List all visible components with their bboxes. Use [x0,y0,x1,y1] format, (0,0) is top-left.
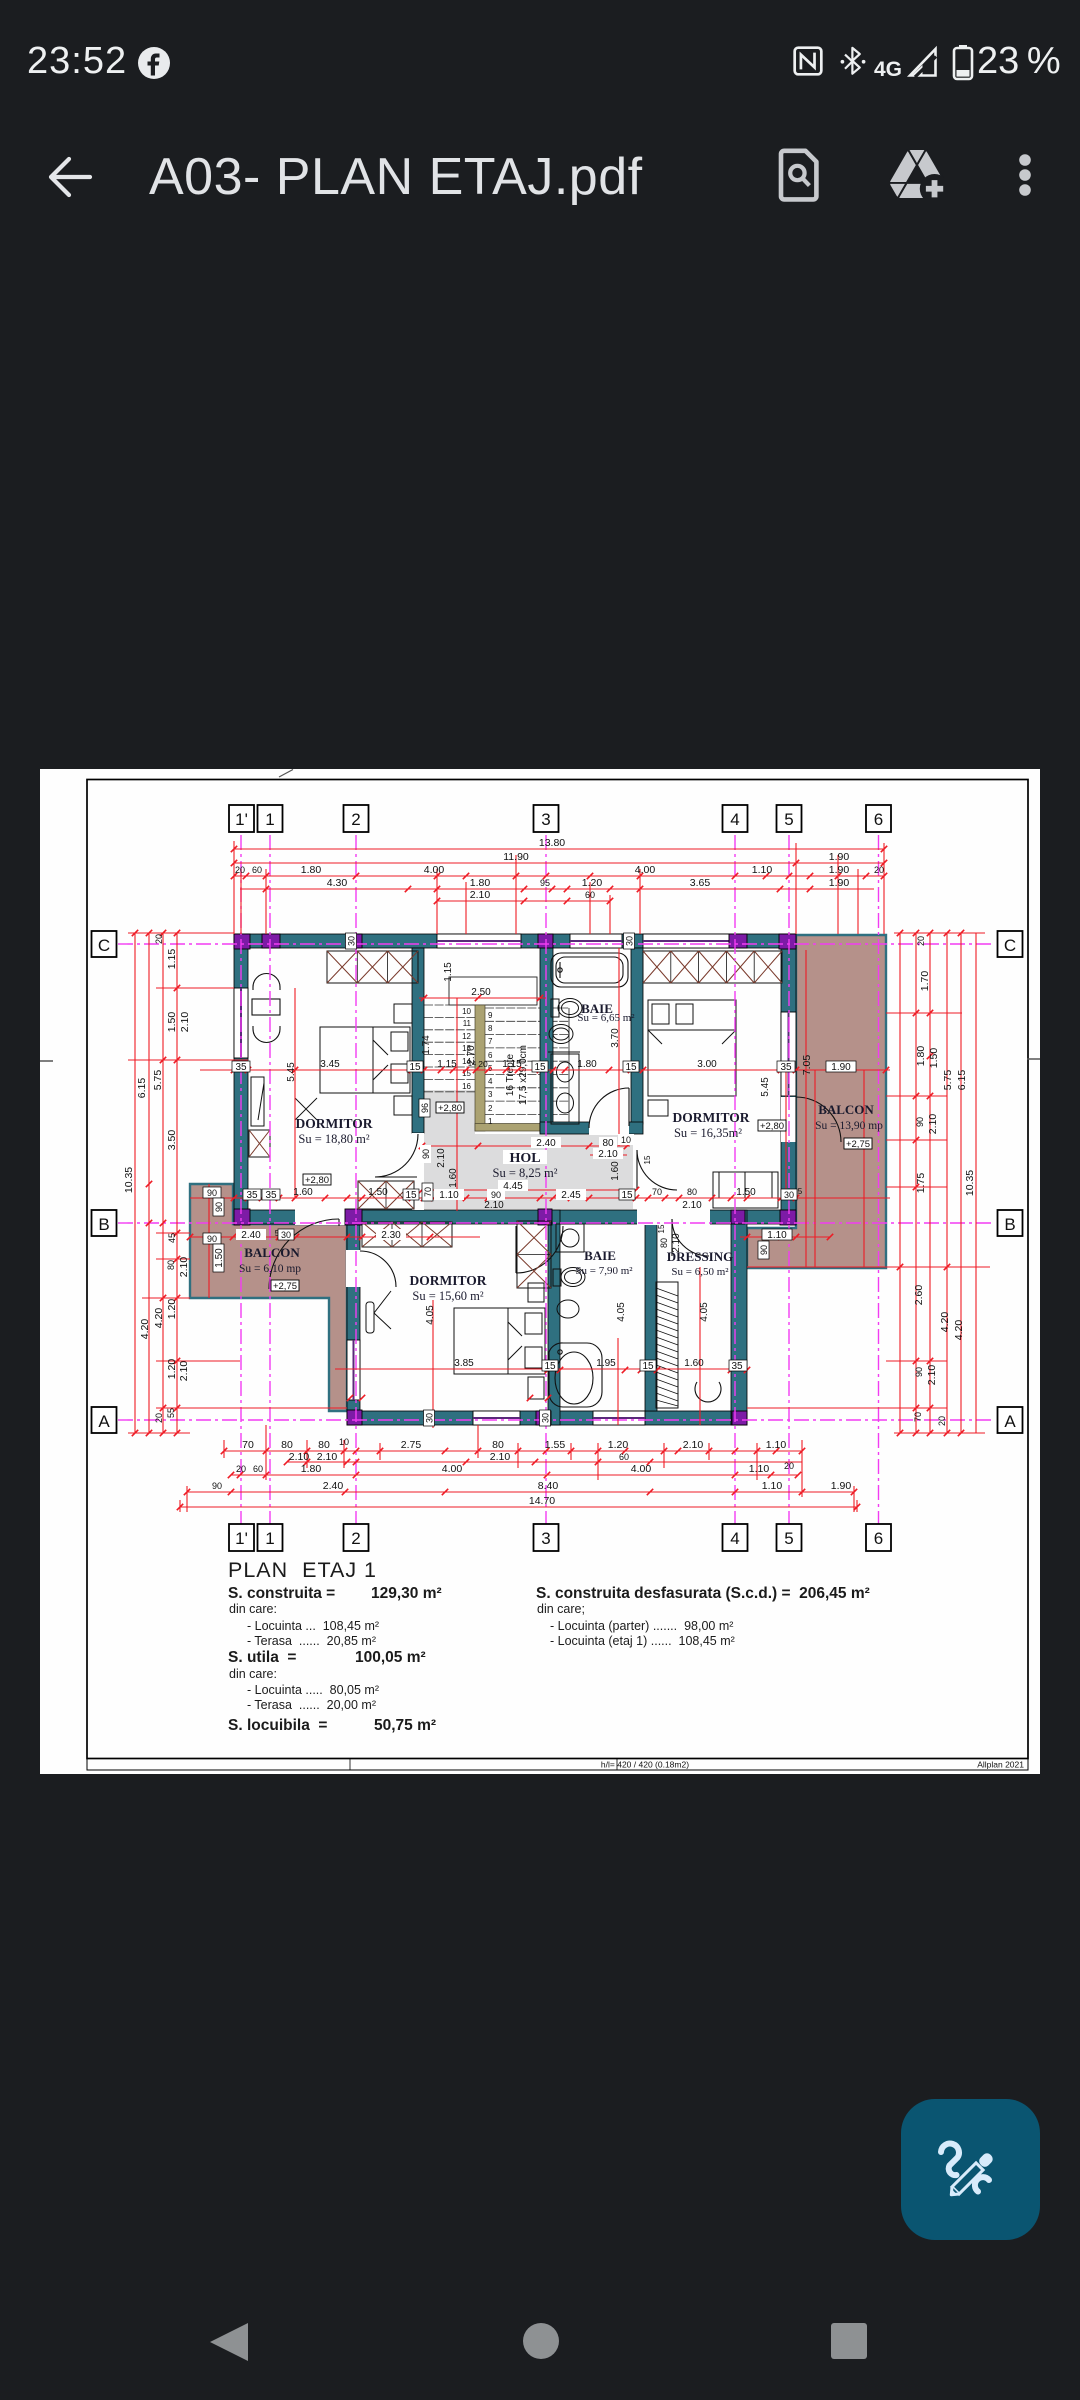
svg-text:90: 90 [421,1149,431,1159]
svg-text:1.10: 1.10 [439,1190,459,1201]
svg-text:70: 70 [652,1187,662,1197]
svg-text:35: 35 [246,1190,258,1201]
svg-text:35: 35 [780,1062,792,1073]
svg-text:4.45: 4.45 [503,1181,523,1192]
svg-text:5.45: 5.45 [286,1062,297,1082]
svg-text:- Locuinta (parter) ....... 9: - Locuinta (parter) ....... 98,00 m² [550,1619,733,1633]
svg-text:70: 70 [913,1412,923,1422]
svg-text:B: B [98,1215,109,1234]
svg-text:80: 80 [281,1439,293,1451]
svg-text:1.50: 1.50 [736,1187,756,1198]
svg-text:din care:: din care: [229,1667,277,1681]
svg-text:2: 2 [351,810,360,829]
svg-text:1.75: 1.75 [915,1173,927,1194]
svg-text:4.20: 4.20 [939,1312,951,1333]
svg-text:20: 20 [937,1416,947,1426]
svg-text:15: 15 [534,1062,546,1073]
svg-text:45: 45 [167,1233,177,1243]
svg-text:90: 90 [915,1117,925,1127]
svg-text:90: 90 [759,1245,769,1255]
svg-text:1.60: 1.60 [610,1161,621,1181]
svg-text:1.95: 1.95 [596,1358,616,1369]
svg-text:15: 15 [642,1361,654,1372]
svg-text:S. utila =: S. utila = [228,1649,296,1666]
svg-text:80: 80 [659,1238,669,1248]
svg-text:C: C [1004,936,1016,955]
svg-text:A: A [1004,1412,1016,1431]
svg-text:1.10: 1.10 [749,1463,770,1475]
svg-text:A: A [98,1412,110,1431]
svg-text:2.50: 2.50 [471,987,491,998]
svg-text:- Locuinta ... 108,45 m²: - Locuinta ... 108,45 m² [247,1619,379,1633]
svg-text:1.74: 1.74 [421,1035,432,1055]
svg-text:2.75: 2.75 [401,1439,422,1451]
svg-text:5: 5 [784,1529,793,1548]
svg-text:1.50: 1.50 [166,1012,178,1033]
svg-text:S. locuibila =: S. locuibila = [228,1717,328,1734]
svg-text:Su = 6,10 mp: Su = 6,10 mp [239,1263,301,1275]
svg-text:35: 35 [731,1361,743,1372]
svg-text:6: 6 [874,810,883,829]
svg-text:1.15: 1.15 [437,1059,457,1070]
svg-text:S. construita desfasurata (S.c: S. construita desfasurata (S.c.d.) = 206… [536,1585,870,1602]
svg-text:1.60: 1.60 [293,1187,313,1198]
svg-text:80: 80 [492,1439,504,1451]
svg-text:1.20: 1.20 [166,1359,178,1380]
svg-text:Su = 6,65 m²: Su = 6,65 m² [577,1012,635,1024]
svg-text:+2,80: +2,80 [438,1103,462,1114]
svg-text:30: 30 [784,1190,794,1200]
svg-text:2.30: 2.30 [381,1230,401,1241]
svg-text:2.40: 2.40 [536,1138,556,1149]
svg-text:9: 9 [488,1011,493,1020]
svg-text:1.70: 1.70 [919,971,931,992]
svg-text:20: 20 [478,1059,488,1069]
svg-text:2.10: 2.10 [927,1114,939,1135]
svg-text:1.90: 1.90 [829,864,850,876]
svg-text:20: 20 [154,934,164,944]
svg-text:DORMITOR: DORMITOR [672,1110,749,1125]
svg-text:1': 1' [235,1529,248,1548]
svg-text:80: 80 [318,1439,330,1451]
svg-text:10.35: 10.35 [123,1167,135,1193]
svg-text:- Terasa ...... 20,85 m²: - Terasa ...... 20,85 m² [247,1634,376,1648]
svg-text:1.80: 1.80 [301,864,322,876]
svg-text:13.80: 13.80 [539,837,565,849]
svg-text:5.75: 5.75 [152,1070,164,1091]
svg-text:2.70: 2.70 [466,1045,477,1065]
svg-text:20: 20 [916,936,926,946]
svg-text:DORMITOR: DORMITOR [409,1273,486,1288]
svg-text:Allplan 2021: Allplan 2021 [977,1760,1024,1770]
svg-text:60: 60 [585,890,595,900]
svg-text:1.10: 1.10 [767,1230,787,1241]
svg-text:1.50: 1.50 [214,1248,225,1268]
svg-text:15: 15 [625,1062,637,1073]
svg-text:4.00: 4.00 [442,1463,463,1475]
svg-text:Su = 16,35m²: Su = 16,35m² [674,1126,742,1140]
svg-text:3: 3 [541,1529,550,1548]
svg-text:7.05: 7.05 [801,1055,813,1076]
svg-text:30: 30 [541,1413,551,1423]
svg-text:4.05: 4.05 [699,1302,710,1322]
svg-text:4.00: 4.00 [631,1463,652,1475]
svg-text:6: 6 [488,1051,493,1060]
svg-text:2.10: 2.10 [317,1451,338,1463]
svg-text:4.00: 4.00 [635,864,656,876]
svg-text:1.90: 1.90 [829,877,850,889]
svg-text:15: 15 [409,1062,421,1073]
svg-text:Su = 6,50 m²: Su = 6,50 m² [671,1266,729,1278]
svg-text:90: 90 [214,1202,224,1212]
svg-text:1.10: 1.10 [766,1439,787,1451]
svg-text:Su = 18,80 m²: Su = 18,80 m² [298,1132,369,1146]
svg-text:4.20: 4.20 [953,1320,965,1341]
svg-text:90: 90 [207,1188,217,1198]
svg-text:2.60: 2.60 [913,1285,925,1306]
svg-text:1.10: 1.10 [762,1480,783,1492]
svg-text:PLAN ETAJ 1: PLAN ETAJ 1 [228,1558,377,1582]
svg-text:60: 60 [619,1452,629,1462]
svg-text:1: 1 [265,1529,274,1548]
svg-text:BALCON: BALCON [818,1102,874,1117]
svg-text:15: 15 [405,1190,417,1201]
svg-text:1.20: 1.20 [582,877,603,889]
svg-text:Su = 13,90 mp: Su = 13,90 mp [815,1120,883,1132]
svg-text:+2,75: +2,75 [846,1139,870,1150]
svg-text:2: 2 [351,1529,360,1548]
svg-text:90: 90 [491,1190,501,1200]
svg-text:10: 10 [621,1135,631,1145]
svg-text:Su = 7,90 m²: Su = 7,90 m² [575,1265,633,1277]
svg-text:14.70: 14.70 [529,1495,555,1507]
svg-text:5.75: 5.75 [942,1070,954,1091]
svg-text:95: 95 [540,878,550,888]
svg-text:2.10: 2.10 [178,1257,190,1278]
svg-text:15: 15 [544,1361,556,1372]
svg-text:3.45: 3.45 [320,1059,340,1070]
svg-text:55: 55 [166,1408,176,1418]
svg-text:4: 4 [730,810,739,829]
svg-text:4.30: 4.30 [327,877,348,889]
svg-text:1': 1' [235,810,248,829]
svg-text:5: 5 [798,1187,803,1196]
svg-text:3.00: 3.00 [697,1059,717,1070]
svg-text:80: 80 [687,1187,697,1197]
svg-text:1: 1 [488,1117,493,1126]
svg-text:30: 30 [425,1413,435,1423]
svg-text:30: 30 [281,1230,291,1240]
svg-text:4: 4 [730,1529,739,1548]
svg-text:5: 5 [784,810,793,829]
svg-text:4.20: 4.20 [139,1319,151,1340]
svg-text:4.05: 4.05 [616,1302,627,1322]
svg-text:129,30 m²: 129,30 m² [371,1585,442,1602]
svg-text:20: 20 [784,1461,794,1471]
svg-text:20: 20 [154,1413,164,1423]
svg-text:3.85: 3.85 [454,1358,474,1369]
svg-text:20: 20 [235,865,245,875]
svg-text:17,5 x29,0cm: 17,5 x29,0cm [518,1045,529,1105]
svg-text:10.35: 10.35 [964,1170,976,1196]
svg-text:60: 60 [253,1464,263,1474]
svg-text:1.80: 1.80 [301,1463,322,1475]
svg-text:2.10: 2.10 [484,1200,504,1211]
svg-text:11.90: 11.90 [503,851,529,863]
svg-text:3.65: 3.65 [690,877,711,889]
svg-text:1.15: 1.15 [443,962,454,982]
svg-text:6: 6 [874,1529,883,1548]
svg-text:3: 3 [541,810,550,829]
svg-text:30: 30 [347,936,357,946]
svg-text:2.10: 2.10 [179,1012,191,1033]
svg-text:6.15: 6.15 [956,1070,968,1091]
svg-text:10: 10 [339,1437,349,1447]
svg-text:2.10: 2.10 [682,1200,702,1211]
svg-text:10: 10 [462,1007,471,1016]
svg-text:4.20: 4.20 [153,1308,165,1329]
svg-text:din care;: din care; [537,1602,585,1616]
svg-text:- Terasa ...... 20,00 m²: - Terasa ...... 20,00 m² [247,1698,376,1712]
svg-text:15: 15 [657,1224,666,1233]
svg-text:2.10: 2.10 [490,1451,511,1463]
svg-text:1.50: 1.50 [368,1187,388,1198]
svg-text:1.15: 1.15 [166,949,178,970]
svg-text:1.90: 1.90 [829,851,850,863]
svg-text:2.40: 2.40 [323,1480,344,1492]
svg-text:2.40: 2.40 [241,1230,261,1241]
svg-text:- Locuinta ..... 80,05 m²: - Locuinta ..... 80,05 m² [247,1683,379,1697]
svg-text:2.10: 2.10 [436,1148,447,1168]
svg-text:90: 90 [914,1367,924,1377]
svg-text:2.45: 2.45 [561,1190,581,1201]
svg-text:1.20: 1.20 [166,1299,178,1320]
svg-text:Su = 8,25 m²: Su = 8,25 m² [493,1166,558,1180]
svg-text:100,05 m²: 100,05 m² [355,1649,426,1666]
svg-text:15: 15 [643,1155,652,1164]
svg-text:16: 16 [462,1082,471,1091]
svg-text:80: 80 [166,1260,176,1270]
svg-text:+2,75: +2,75 [273,1281,297,1292]
svg-text:4.00: 4.00 [424,864,445,876]
svg-text:50,75 m²: 50,75 m² [374,1717,436,1734]
svg-text:1.90: 1.90 [831,1062,851,1073]
svg-text:8.40: 8.40 [538,1480,559,1492]
svg-text:12: 12 [462,1032,471,1041]
svg-text:DORMITOR: DORMITOR [295,1116,372,1131]
svg-text:7: 7 [488,1037,493,1046]
svg-text:B: B [1004,1215,1015,1234]
svg-text:HOL: HOL [509,1151,540,1166]
svg-text:1.90: 1.90 [831,1480,852,1492]
svg-text:4.05: 4.05 [425,1305,436,1325]
svg-text:1.10: 1.10 [752,864,773,876]
svg-text:2.10: 2.10 [598,1149,618,1160]
svg-text:1.60: 1.60 [684,1358,704,1369]
svg-text:- Locuinta (etaj 1) ...... 10: - Locuinta (etaj 1) ...... 108,45 m² [550,1634,735,1648]
svg-text:8: 8 [488,1024,493,1033]
svg-text:1.80: 1.80 [470,877,491,889]
svg-text:11: 11 [463,1019,472,1028]
svg-text:1.50: 1.50 [928,1048,940,1069]
svg-text:h/l= 420 / 420 (0.18m2): h/l= 420 / 420 (0.18m2) [601,1760,689,1770]
svg-text:2.10: 2.10 [470,889,491,901]
svg-text:BALCON: BALCON [244,1245,300,1260]
svg-text:30: 30 [625,936,635,946]
svg-text:90: 90 [207,1234,217,1244]
svg-text:2.10: 2.10 [178,1361,190,1382]
svg-text:+2,80: +2,80 [305,1175,329,1186]
svg-text:1.55: 1.55 [545,1439,566,1451]
svg-text:2.10: 2.10 [289,1451,310,1463]
svg-text:DRESSING: DRESSING [667,1249,733,1264]
svg-text:1.20: 1.20 [608,1439,629,1451]
svg-text:2: 2 [488,1104,493,1113]
svg-text:6.15: 6.15 [136,1078,148,1099]
svg-text:35: 35 [235,1062,247,1073]
svg-text:96: 96 [420,1103,430,1113]
svg-text:35: 35 [265,1190,277,1201]
svg-text:80: 80 [602,1138,614,1149]
svg-text:1.80: 1.80 [915,1046,927,1067]
svg-text:2.10: 2.10 [926,1365,938,1386]
svg-text:din care:: din care: [229,1602,277,1616]
svg-text:1.15: 1.15 [502,1059,522,1070]
svg-text:C: C [98,936,110,955]
svg-text:90: 90 [212,1481,222,1491]
svg-text:2.10: 2.10 [683,1439,704,1451]
svg-text:15: 15 [621,1190,633,1201]
svg-text:60: 60 [252,865,262,875]
svg-text:1.60: 1.60 [448,1168,459,1188]
svg-text:5.45: 5.45 [760,1077,771,1097]
svg-text:Su = 15,60 m²: Su = 15,60 m² [412,1289,483,1303]
svg-text:S. construita =: S. construita = [228,1585,335,1602]
svg-text:3.70: 3.70 [610,1028,621,1048]
svg-text:1.80: 1.80 [577,1059,597,1070]
svg-text:3.50: 3.50 [166,1130,178,1151]
svg-text:1: 1 [265,810,274,829]
svg-text:20: 20 [236,1464,246,1474]
svg-text:20: 20 [874,865,884,875]
svg-text:3: 3 [488,1090,493,1099]
svg-text:4: 4 [488,1077,493,1086]
svg-text:BAIE: BAIE [584,1248,616,1263]
svg-text:70: 70 [423,1187,433,1197]
svg-text:70: 70 [242,1439,254,1451]
svg-text:+2,80: +2,80 [760,1121,784,1132]
